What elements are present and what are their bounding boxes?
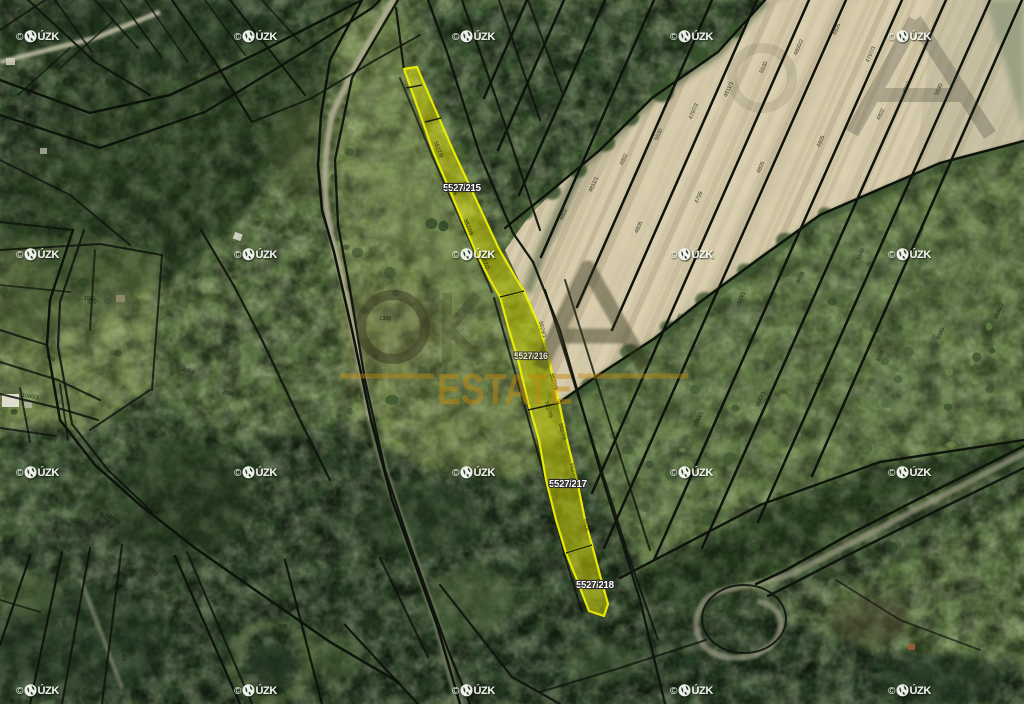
svg-text:5527/217: 5527/217 [549, 479, 587, 490]
svg-text:1358: 1358 [379, 315, 392, 322]
svg-text:5527/218: 5527/218 [576, 580, 614, 591]
svg-text:1061: 1061 [84, 296, 96, 302]
svg-text:909: 909 [278, 624, 287, 630]
svg-text:5527/216: 5527/216 [514, 351, 548, 361]
